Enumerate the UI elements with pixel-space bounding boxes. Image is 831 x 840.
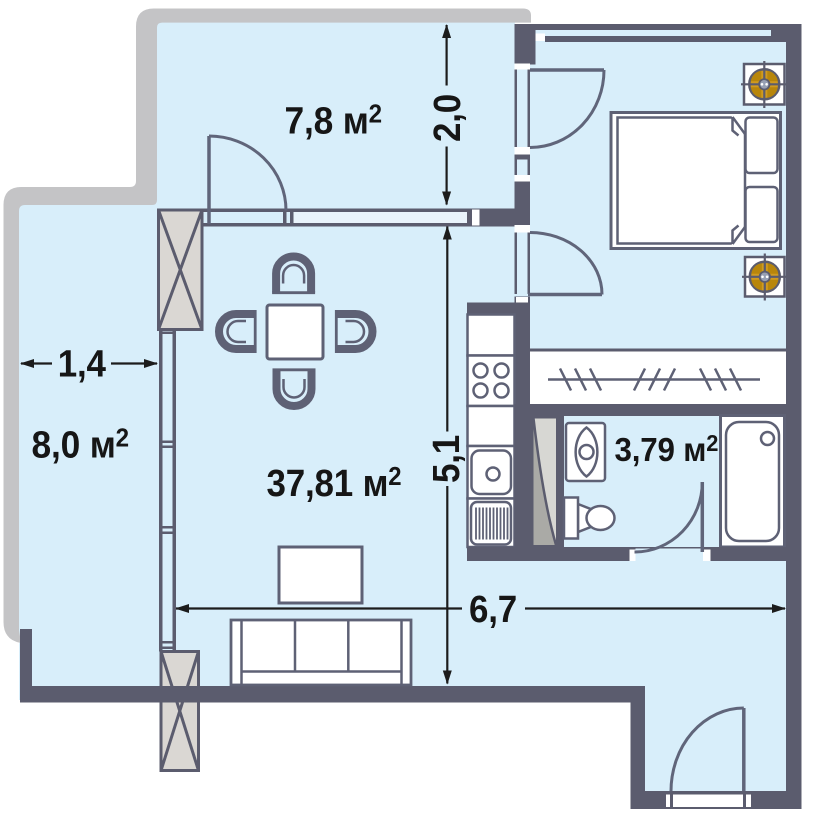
svg-text:37,81 м2: 37,81 м2 — [267, 462, 402, 505]
svg-text:1,4: 1,4 — [58, 342, 107, 385]
svg-text:8,0 м2: 8,0 м2 — [32, 423, 129, 465]
svg-text:6,7: 6,7 — [469, 588, 517, 631]
svg-text:3,79 м2: 3,79 м2 — [615, 430, 719, 468]
svg-text:2,0: 2,0 — [426, 94, 469, 142]
svg-text:7,8 м2: 7,8 м2 — [285, 99, 382, 141]
svg-text:5,1: 5,1 — [425, 435, 468, 483]
